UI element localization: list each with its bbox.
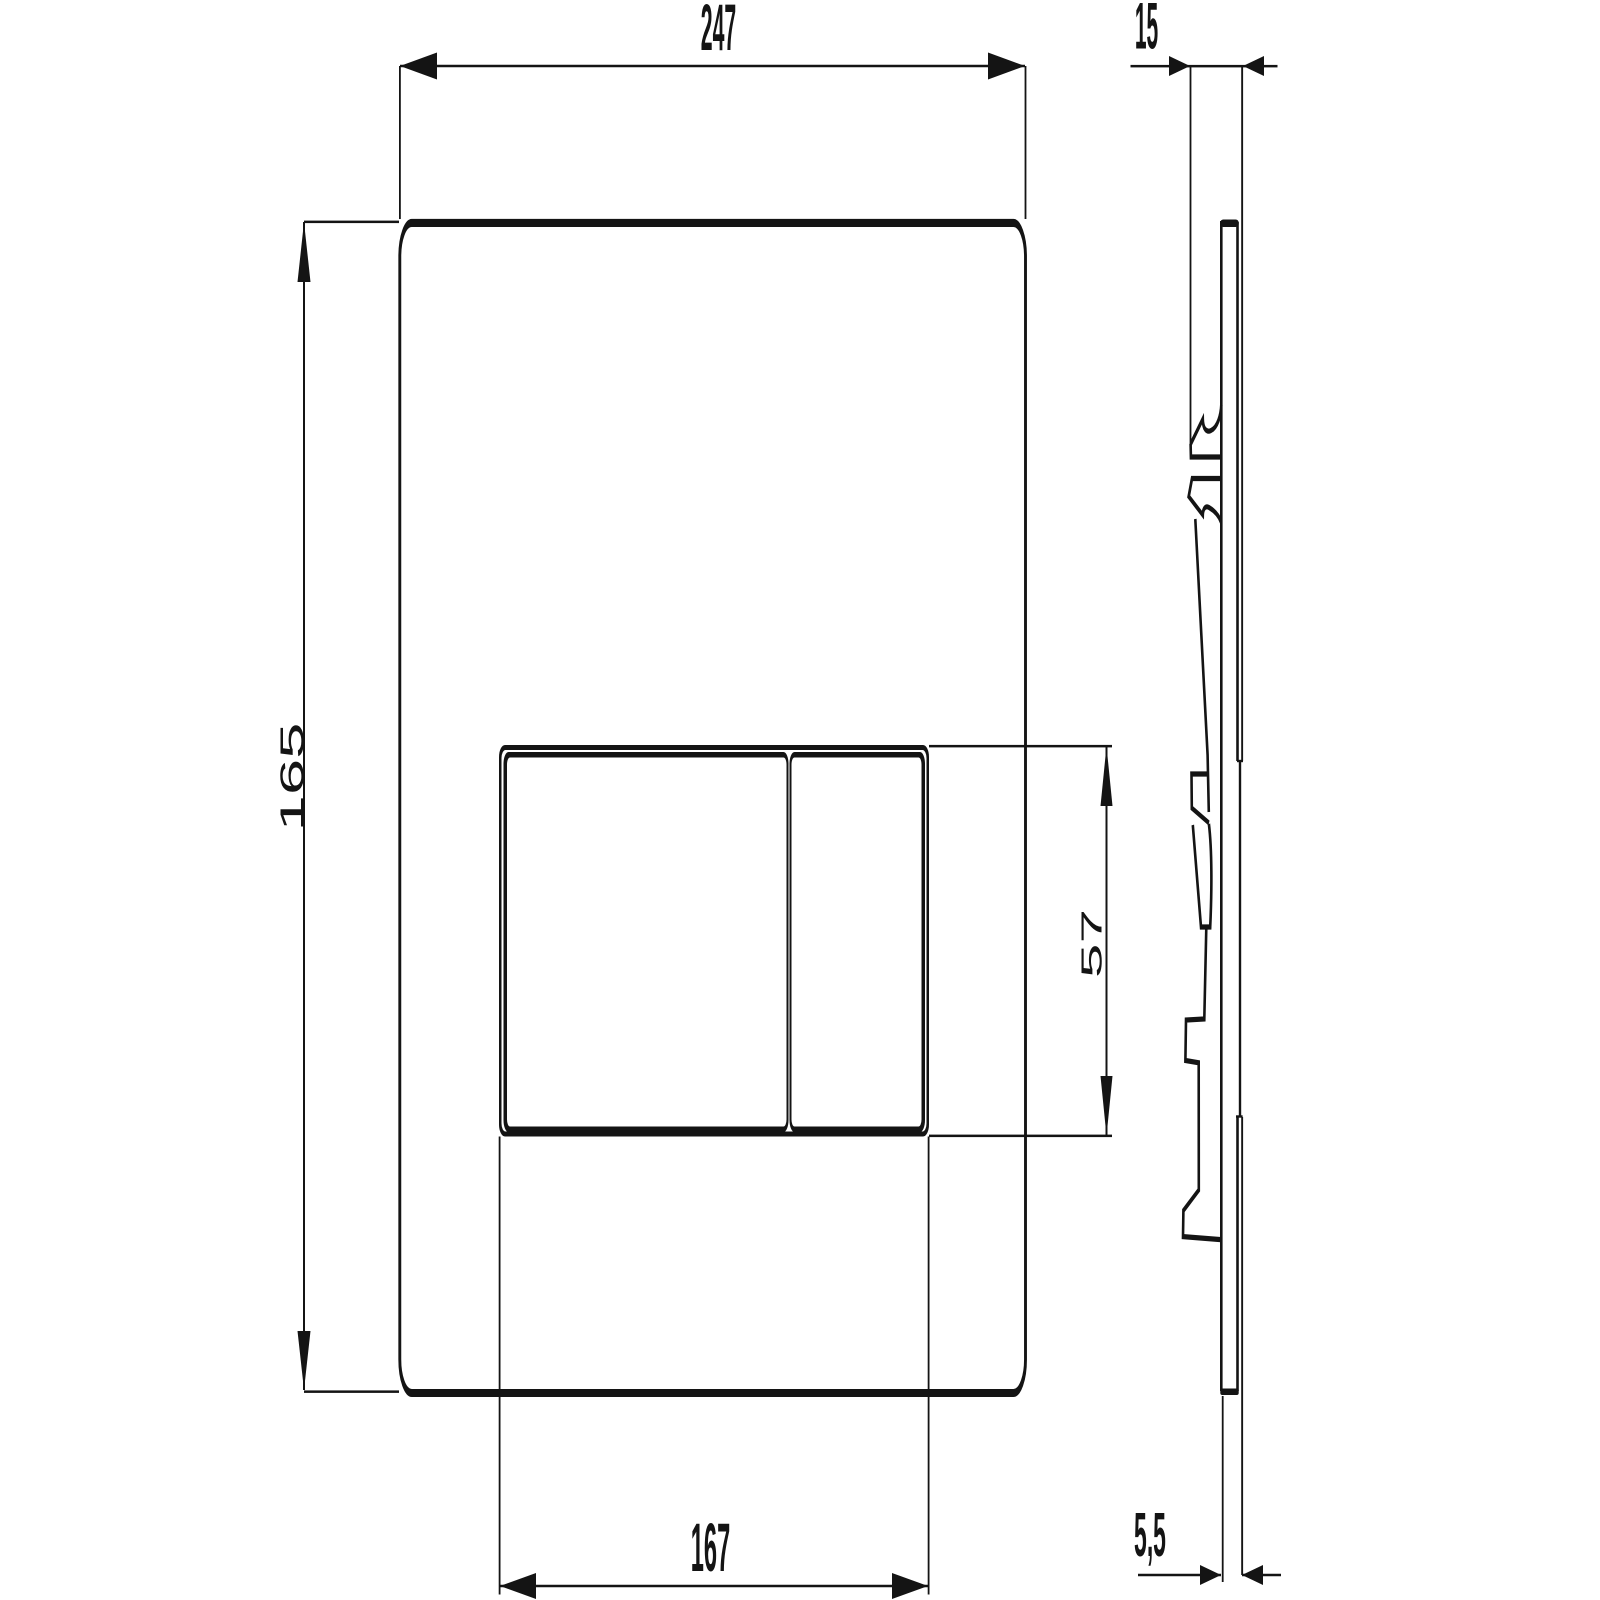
svg-text:15: 15 — [1135, 0, 1158, 63]
svg-text:247: 247 — [701, 0, 736, 65]
svg-text:5,5: 5,5 — [1134, 1500, 1166, 1569]
svg-text:167: 167 — [691, 1510, 730, 1586]
svg-text:57: 57 — [1076, 909, 1108, 978]
svg-text:165: 165 — [274, 723, 311, 832]
